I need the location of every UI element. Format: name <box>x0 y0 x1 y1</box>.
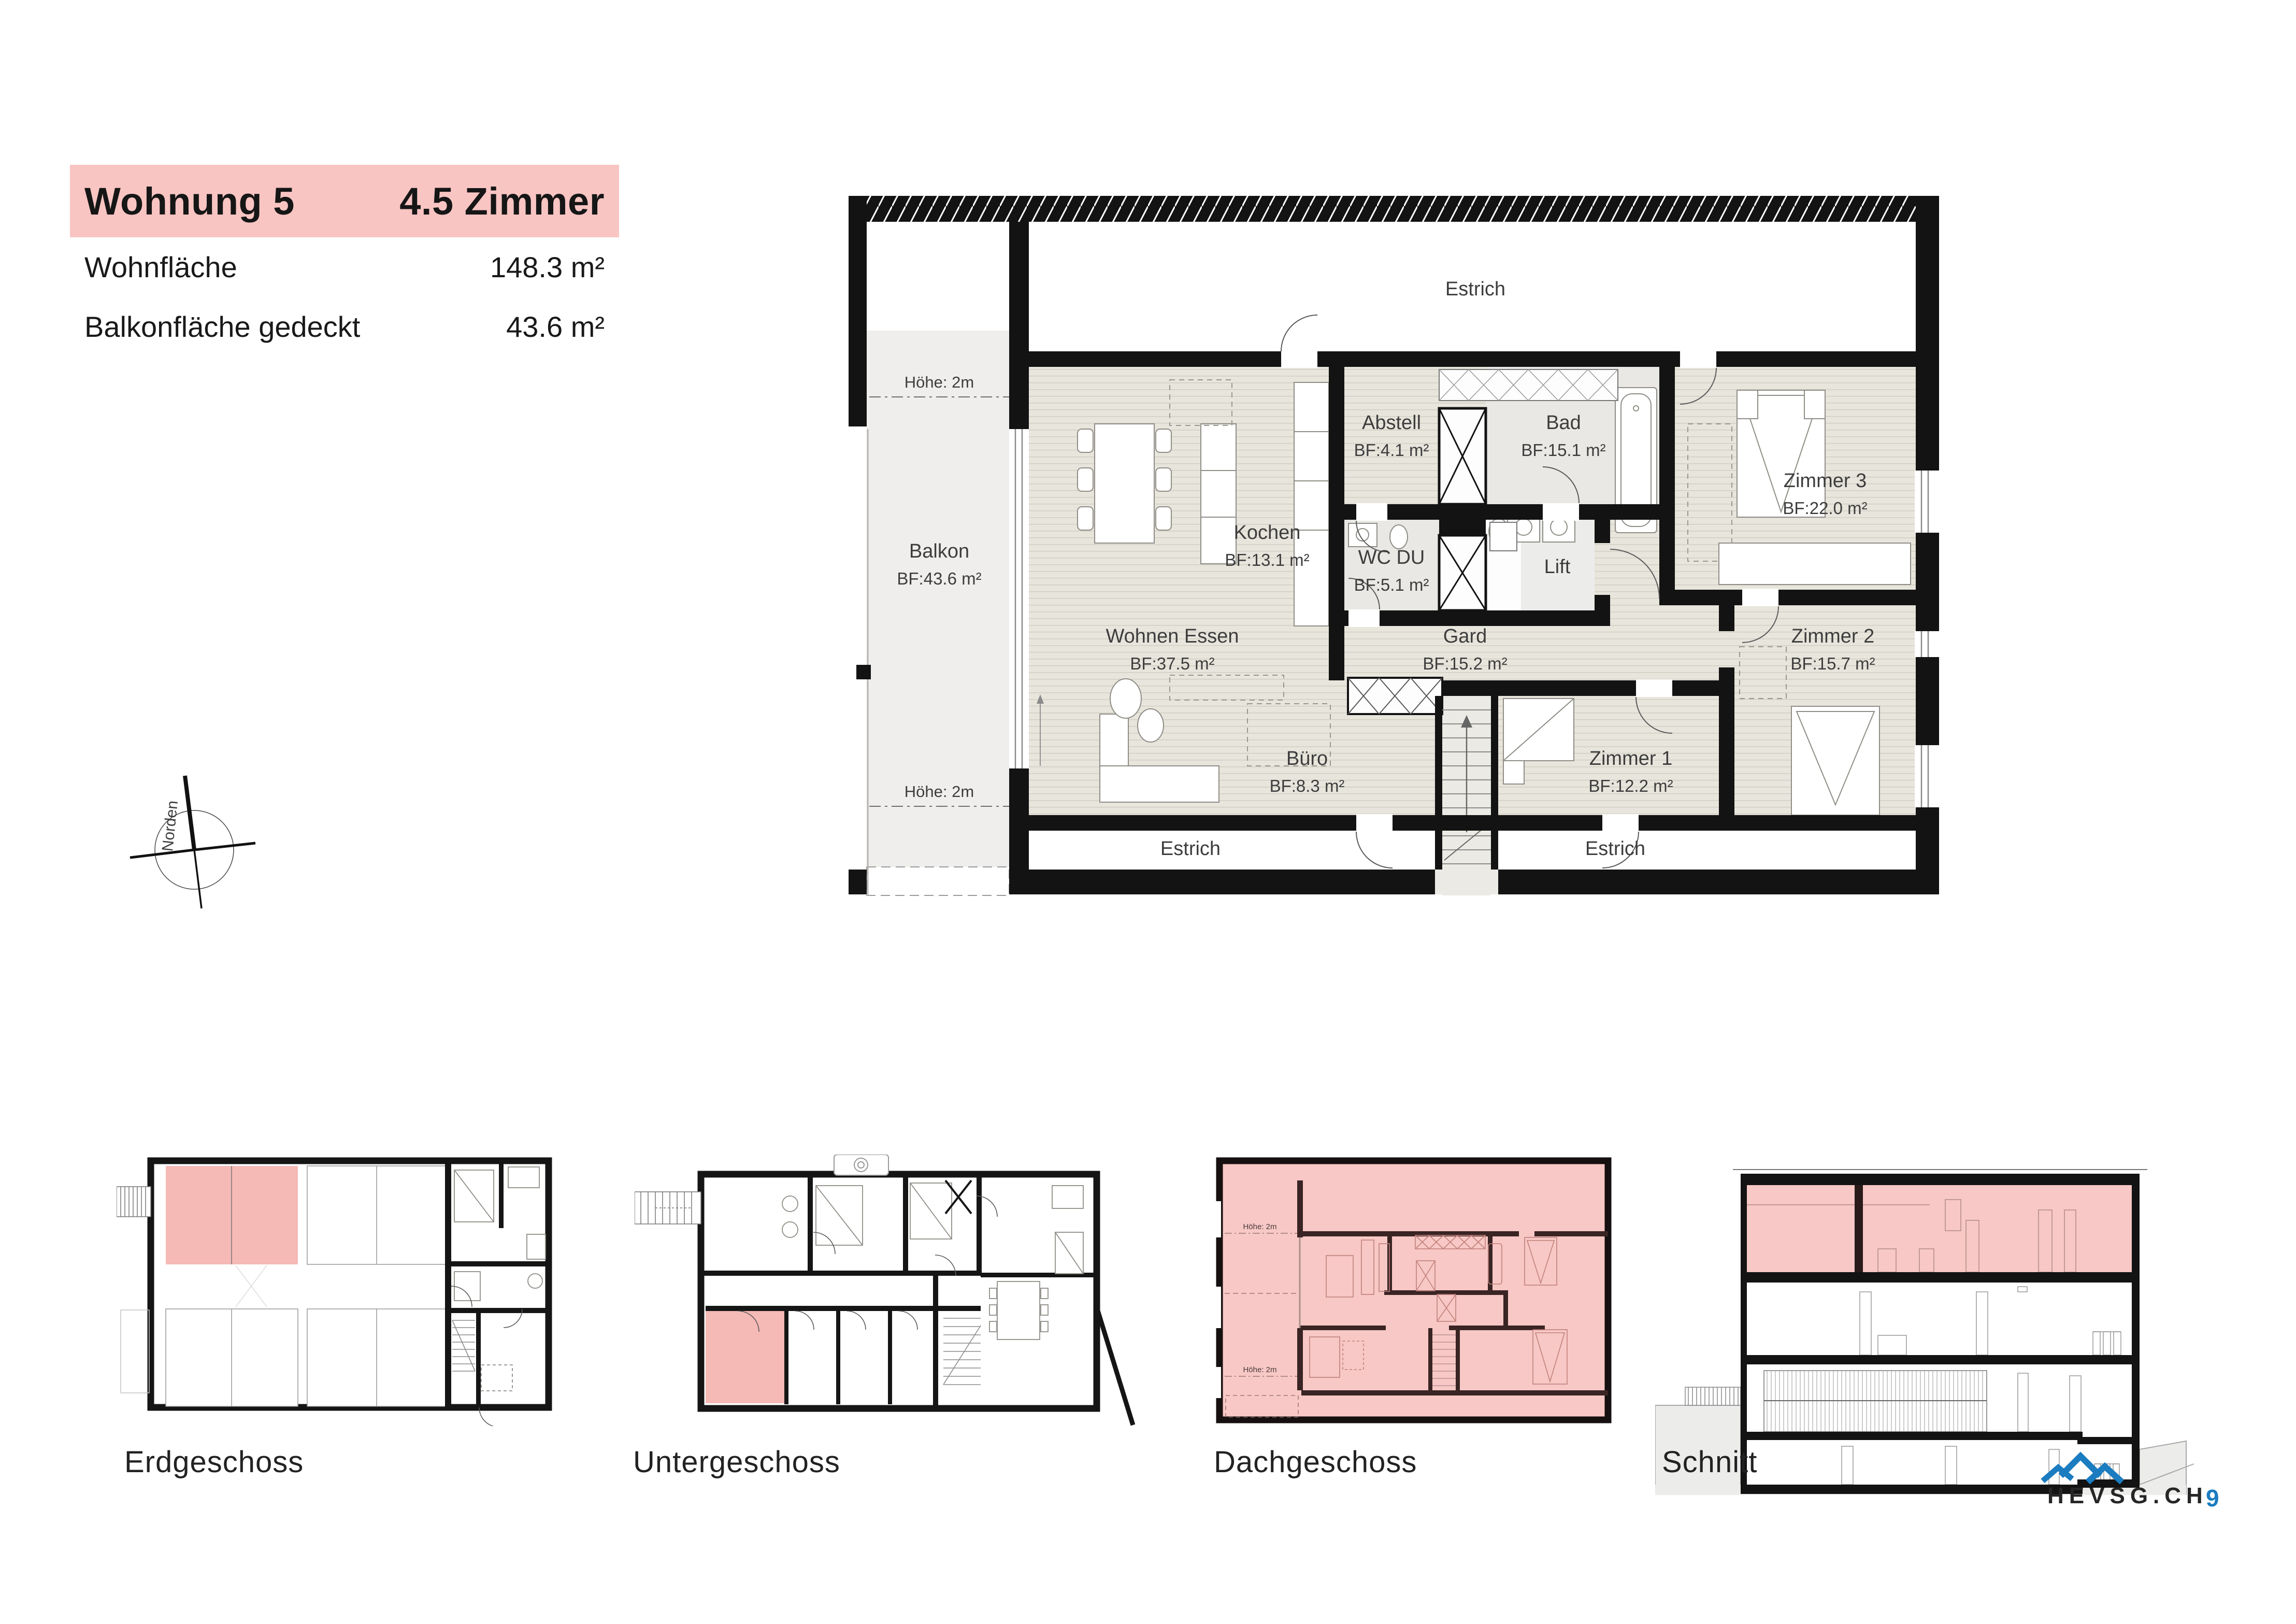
wohnen-area: BF:37.5 m² <box>1130 654 1214 673</box>
garage-grille <box>1764 1371 1987 1432</box>
kochen-area: BF:13.1 m² <box>1225 550 1309 569</box>
abstell-label: Abstell <box>1362 412 1421 434</box>
balcony-area-value: 43.6 m² <box>506 310 605 344</box>
highlight-cellar <box>706 1310 784 1403</box>
apartment-title: Wohnung 5 <box>84 179 295 223</box>
wohnen-label: Wohnen Essen <box>1106 625 1239 647</box>
gard-label: Gard <box>1443 625 1487 647</box>
wcdu-area: BF:5.1 m² <box>1354 575 1429 594</box>
zimmer2-label: Zimmer 2 <box>1791 625 1874 647</box>
dg-window-gaps <box>1215 1201 1221 1398</box>
garage-stalls-top <box>307 1166 446 1264</box>
balcony-area-row: Balkonfläche gedeckt 43.6 m² <box>70 308 619 345</box>
zimmer3-area: BF:22.0 m² <box>1783 498 1867 518</box>
page-number: 9 <box>2206 1484 2219 1512</box>
balcony-area-sqm: BF:43.6 m² <box>897 569 981 588</box>
balcony-height-note-top: Höhe: 2m <box>905 373 974 391</box>
bad-area: BF:15.1 m² <box>1521 440 1605 460</box>
caption-schnitt: Schnitt <box>1662 1445 1757 1479</box>
main-floor-plan: Höhe: 2m Höhe: 2m Balkon BF:43.6 m² <box>838 180 1952 901</box>
living-area-row: Wohnfläche 148.3 m² <box>70 249 619 285</box>
buero-label: Büro <box>1286 748 1328 770</box>
attic-highlight <box>1744 1185 2136 1272</box>
ug-ext-stair <box>635 1192 701 1224</box>
gard-area: BF:15.2 m² <box>1423 654 1507 673</box>
thumbnail-schnitt <box>1655 1153 2296 1495</box>
estrich-bl-label: Estrich <box>1160 838 1221 860</box>
compass-icon: Norden <box>127 744 272 920</box>
dg-hoehe-top: Höhe: 2m <box>1243 1222 1276 1231</box>
living-area-label: Wohnfläche <box>84 250 237 284</box>
zimmer1-area: BF:12.2 m² <box>1588 776 1673 795</box>
garage-stalls-bottom <box>121 1309 446 1406</box>
thumbnail-untergeschoss <box>635 1155 1158 1429</box>
abstell-area: BF:4.1 m² <box>1354 440 1429 460</box>
estrich-top-label: Estrich <box>1445 278 1505 300</box>
lift-label: Lift <box>1544 556 1571 578</box>
logo-mountains-icon <box>2040 1449 2133 1486</box>
caption-untergeschoss: Untergeschoss <box>633 1445 840 1479</box>
logo-text: HEVSG.CH <box>2047 1483 2208 1509</box>
balcony-height-note-bottom: Höhe: 2m <box>905 782 974 801</box>
bad-label: Bad <box>1546 412 1581 434</box>
schnitt-fence <box>1685 1387 1741 1405</box>
wcdu-label: WC DU <box>1358 547 1425 568</box>
balcony-zone: Höhe: 2m Höhe: 2m Balkon BF:43.6 m² <box>867 331 1009 895</box>
living-area-value: 148.3 m² <box>490 250 605 284</box>
ug-retaining-wall <box>1097 1309 1133 1425</box>
balcony-area-label: Balkonfläche gedeckt <box>84 310 360 344</box>
caption-dachgeschoss: Dachgeschoss <box>1214 1445 1417 1479</box>
thumbnail-erdgeschoss <box>117 1157 583 1426</box>
caption-erdgeschoss: Erdgeschoss <box>124 1445 304 1479</box>
dg-hoehe-bottom: Höhe: 2m <box>1243 1365 1276 1374</box>
ug-washer <box>834 1155 888 1175</box>
balcony-label: Balkon <box>909 540 969 562</box>
compass-north-label: Norden <box>159 800 181 852</box>
exterior-stair <box>117 1187 151 1217</box>
thumbnail-dachgeschoss: Höhe: 2m Höhe: 2m <box>1213 1155 1615 1432</box>
apartment-title-box: Wohnung 5 4.5 Zimmer <box>70 165 619 237</box>
apartment-room-count: 4.5 Zimmer <box>399 179 605 223</box>
zimmer2-area: BF:15.7 m² <box>1790 654 1875 673</box>
kochen-label: Kochen <box>1234 522 1301 544</box>
zimmer3-label: Zimmer 3 <box>1784 470 1867 492</box>
zimmer1-label: Zimmer 1 <box>1589 748 1672 770</box>
buero-area: BF:8.3 m² <box>1270 776 1345 795</box>
estrich-br-label: Estrich <box>1585 838 1645 860</box>
